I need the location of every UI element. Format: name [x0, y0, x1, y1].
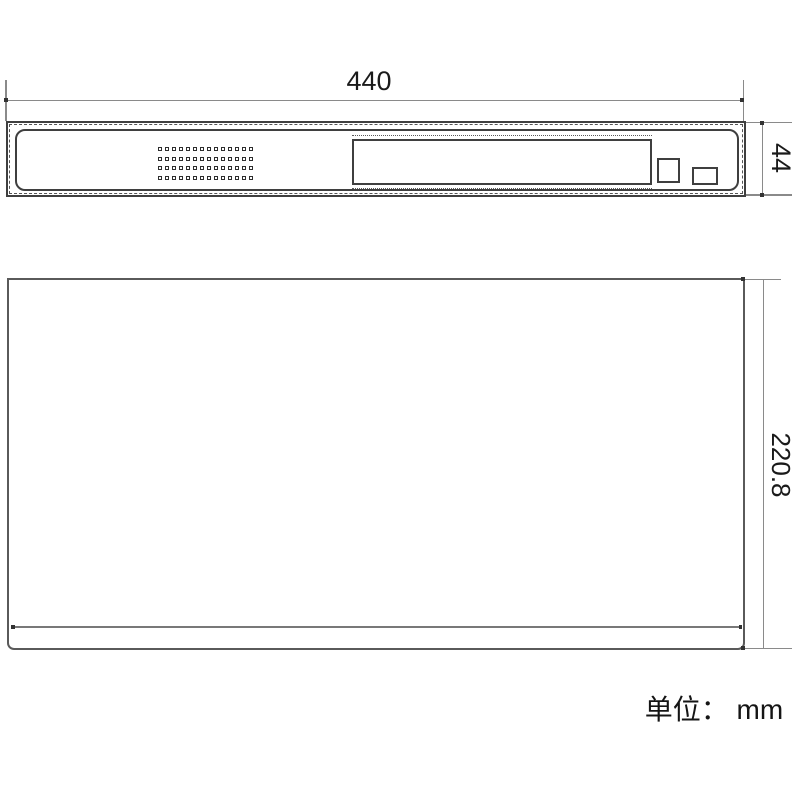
front-panel-button-large: [657, 158, 680, 183]
grille-dot: [221, 176, 225, 180]
grille-dot: [186, 147, 190, 151]
top-view-hidden-edge-line: [12, 626, 742, 628]
width-dimension-line: [5, 100, 744, 102]
unit-label: 单位： mm: [626, 688, 800, 728]
display-recess-dotted-line-bottom: [352, 188, 652, 189]
grille-dot: [249, 176, 253, 180]
top-view-outline: [7, 278, 745, 650]
grille-dot: [172, 166, 176, 170]
grille-dot: [179, 147, 183, 151]
grille-dot: [235, 176, 239, 180]
grille-dot: [228, 176, 232, 180]
grille-dot: [207, 157, 211, 161]
grille-dot: [193, 157, 197, 161]
grille-dot: [179, 157, 183, 161]
grille-dot: [179, 166, 183, 170]
height-dimension-endpoint-dot: [760, 193, 764, 197]
height-dimension-label: 44: [751, 128, 800, 188]
top-view-edge-endpoint-dot: [739, 625, 743, 629]
grille-dot: [172, 147, 176, 151]
height-dimension-endpoint-dot: [760, 121, 764, 125]
depth-dimension-label: 220.8: [741, 425, 800, 505]
grille-dot: [165, 176, 169, 180]
grille-dot: [200, 166, 204, 170]
grille-dot: [165, 147, 169, 151]
grille-dot: [158, 176, 162, 180]
top-view-edge-endpoint-dot: [11, 625, 15, 629]
grille-dot: [200, 176, 204, 180]
width-dimension-label: 440: [319, 65, 419, 97]
grille-dot: [158, 147, 162, 151]
grille-dot: [221, 166, 225, 170]
grille-dot: [186, 157, 190, 161]
grille-dot: [186, 176, 190, 180]
grille-dot: [235, 147, 239, 151]
display-window: [352, 139, 652, 185]
grille-dot: [200, 147, 204, 151]
grille-dot: [193, 166, 197, 170]
grille-dot: [249, 166, 253, 170]
grille-dot: [249, 157, 253, 161]
grille-dot: [214, 176, 218, 180]
grille-dot: [200, 157, 204, 161]
grille-dot: [172, 176, 176, 180]
grille-dot: [235, 166, 239, 170]
front-panel-button-small: [692, 167, 718, 185]
grille-dot: [158, 157, 162, 161]
grille-dot: [186, 166, 190, 170]
grille-dot: [179, 176, 183, 180]
grille-dot: [207, 147, 211, 151]
grille-dot: [221, 157, 225, 161]
grille-dot: [249, 147, 253, 151]
grille-dot: [228, 166, 232, 170]
grille-dot: [242, 166, 246, 170]
grille-dot: [235, 157, 239, 161]
width-dimension-endpoint-dot: [4, 98, 8, 102]
grille-dot: [242, 176, 246, 180]
width-dimension-endpoint-dot: [740, 98, 744, 102]
depth-extension-line-bottom: [744, 648, 792, 650]
grille-dot: [242, 157, 246, 161]
grille-dot: [158, 166, 162, 170]
grille-dot: [242, 147, 246, 151]
grille-dot: [228, 147, 232, 151]
height-extension-line-top: [746, 122, 792, 124]
grille-dot: [214, 147, 218, 151]
grille-dot: [228, 157, 232, 161]
ventilation-grille: [158, 147, 253, 180]
grille-dot: [221, 147, 225, 151]
grille-dot: [165, 166, 169, 170]
display-recess-dotted-line-top: [352, 135, 652, 136]
grille-dot: [193, 176, 197, 180]
grille-dot: [172, 157, 176, 161]
grille-dot: [193, 147, 197, 151]
grille-dot: [165, 157, 169, 161]
dimension-drawing: 440 44 220.8 单位： mm: [0, 0, 800, 800]
grille-dot: [207, 176, 211, 180]
depth-dimension-endpoint-dot: [741, 646, 745, 650]
depth-dimension-endpoint-dot: [741, 277, 745, 281]
grille-dot: [214, 166, 218, 170]
grille-dot: [207, 166, 211, 170]
grille-dot: [214, 157, 218, 161]
height-extension-line-bottom: [746, 194, 792, 196]
